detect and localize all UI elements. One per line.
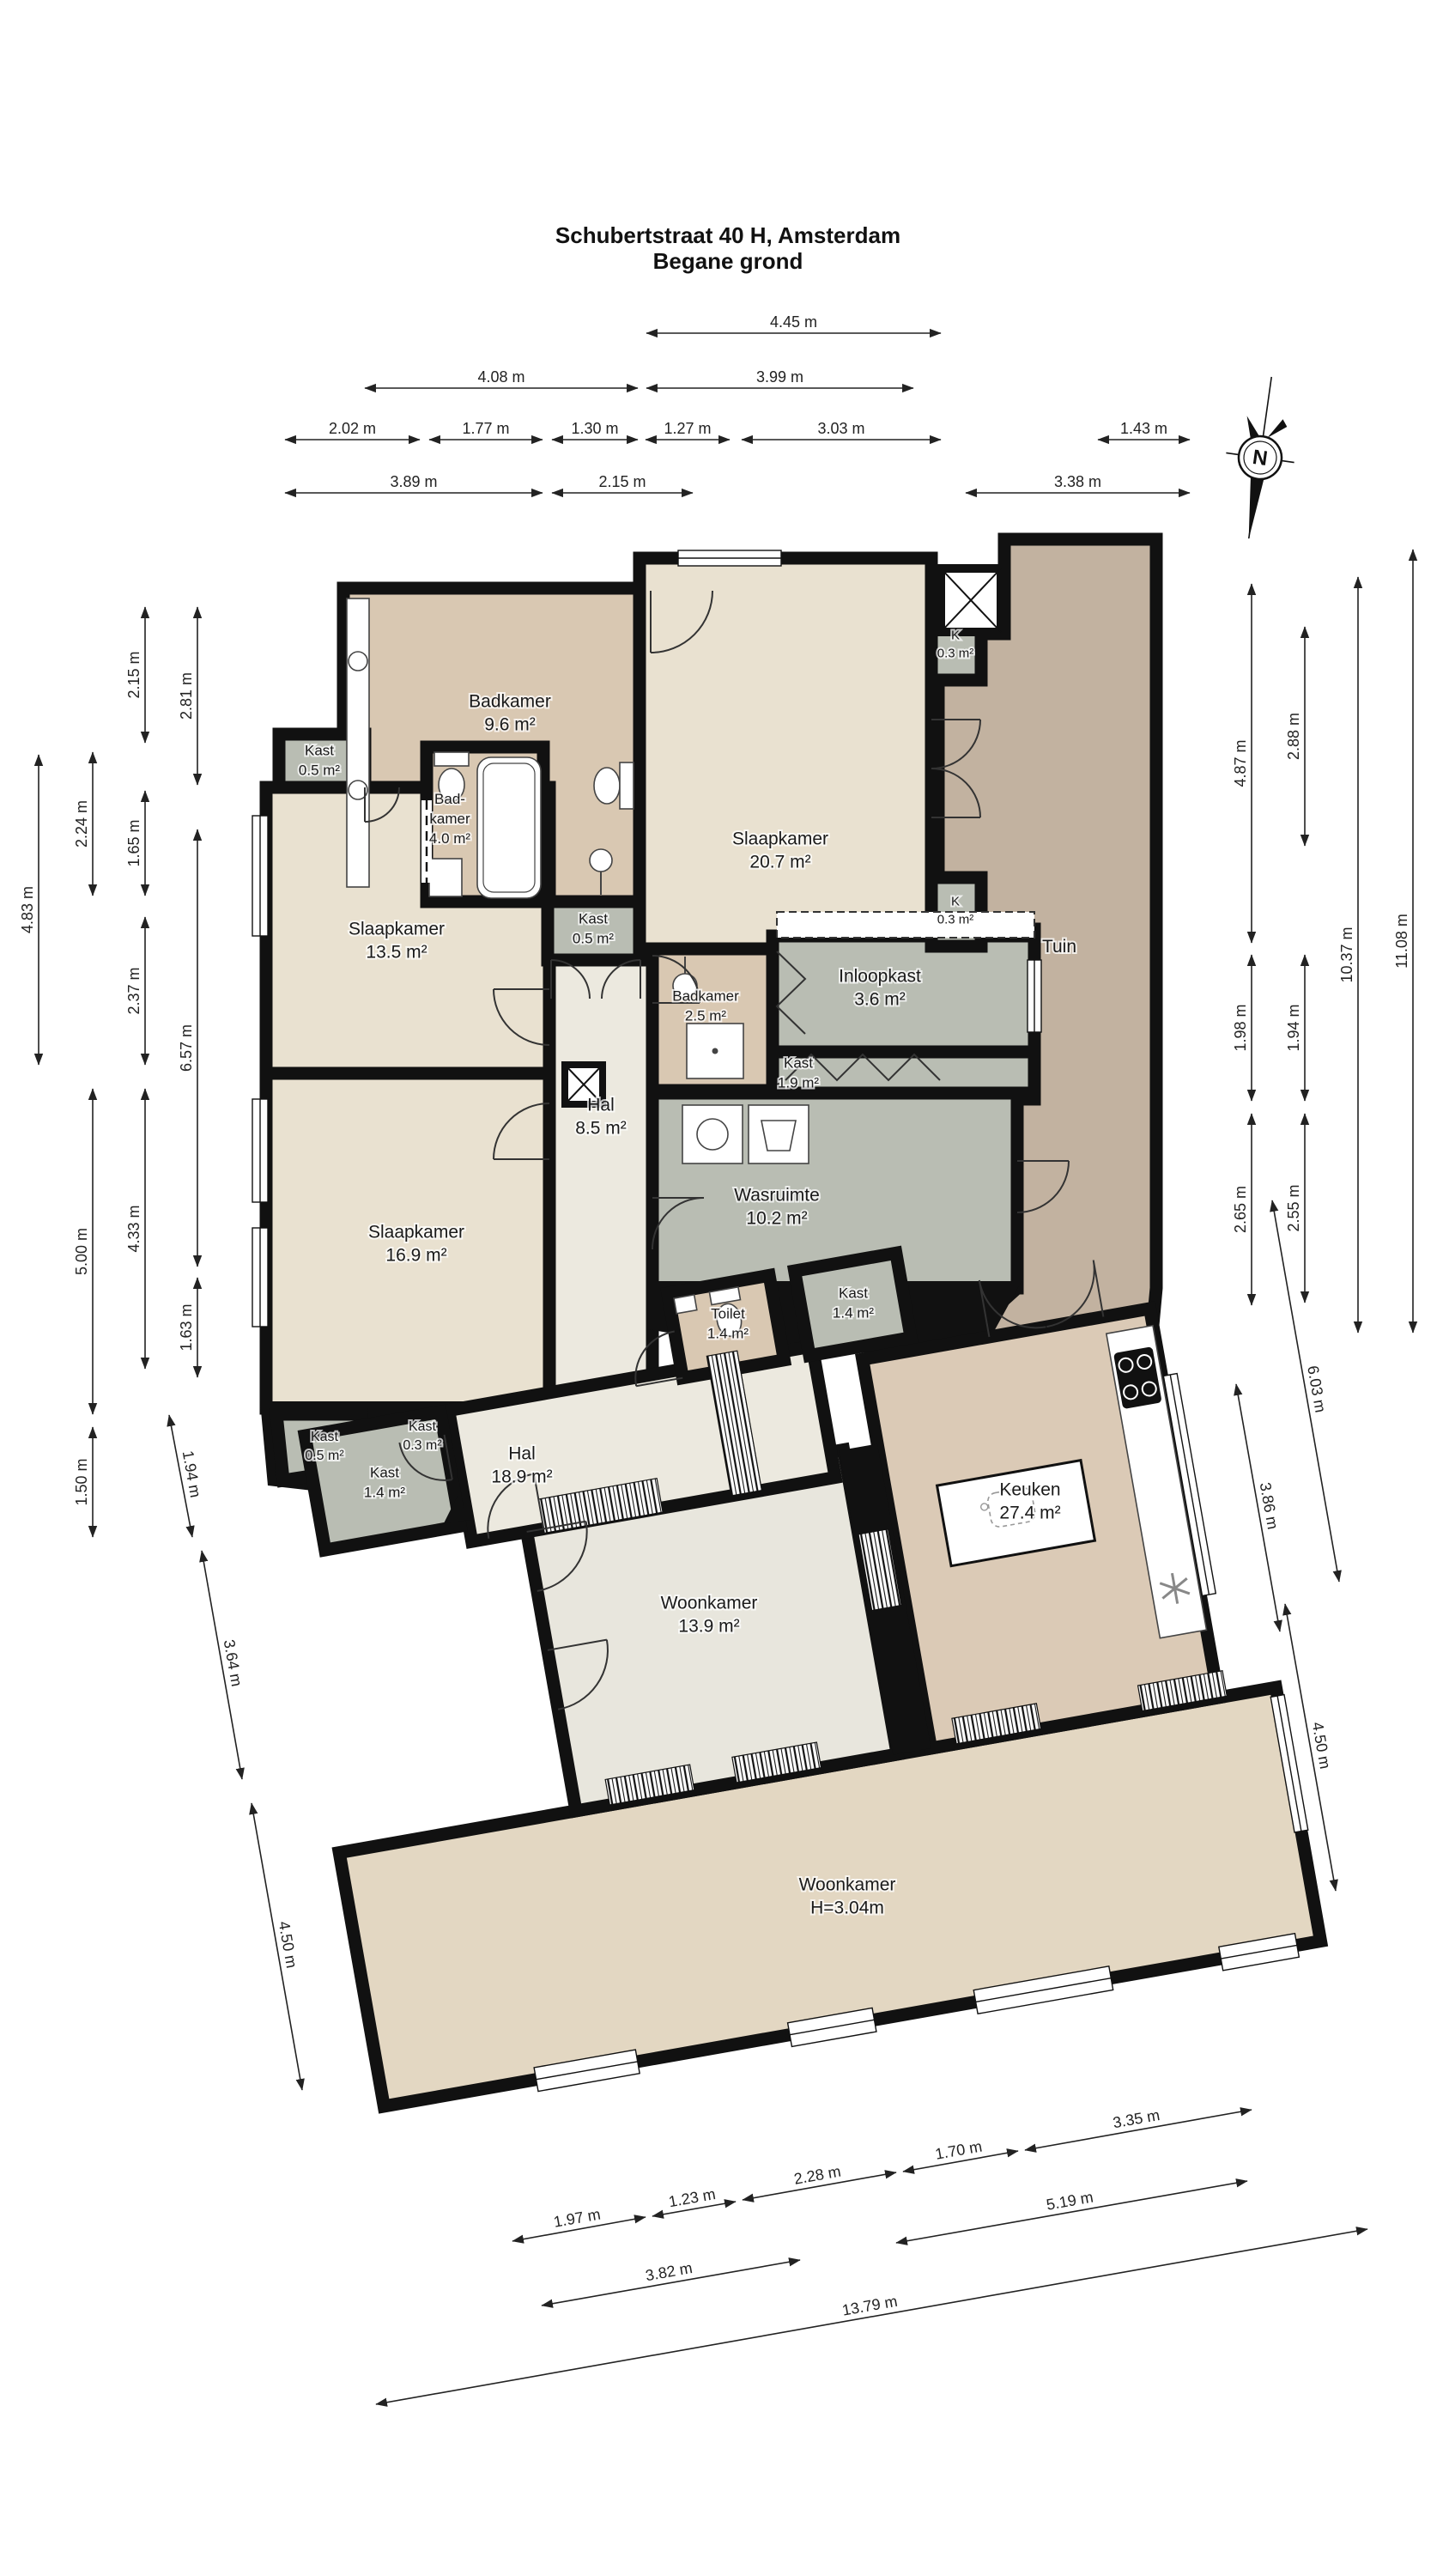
wardrobe-dashed: [777, 912, 1034, 938]
dimension-2-28-m: 2.28 m: [743, 2163, 896, 2200]
bathtub-icon: [477, 757, 541, 898]
plan-title: Schubertstraat 40 H, Amsterdam Begane gr…: [555, 222, 900, 274]
room-label-text: 4.0 m²: [429, 830, 471, 847]
dimension-1-70-m: 1.70 m: [903, 2138, 1018, 2172]
dimension-label: 2.65 m: [1232, 1186, 1249, 1233]
dimension-label: 3.99 m: [756, 368, 803, 386]
room-label-text: Slaapkamer: [349, 920, 445, 939]
dimension-2-24-m: 2.24 m: [73, 752, 93, 896]
dimension-label: 1.98 m: [1232, 1004, 1249, 1051]
dimension-2-15-m: 2.15 m: [552, 473, 693, 493]
dimension-4-08-m: 4.08 m: [365, 368, 638, 388]
room-label-text: 18.9 m²: [491, 1467, 552, 1487]
dimension-3-35-m: 3.35 m: [1025, 2106, 1252, 2150]
room-hal-8-5: [549, 960, 652, 1406]
room-label-text: Woonkamer: [799, 1875, 896, 1895]
dimension-label: 1.50 m: [73, 1458, 90, 1505]
dimension-1-50-m: 1.50 m: [73, 1427, 93, 1537]
room-label-text: Woonkamer: [661, 1594, 758, 1613]
room-label-tuin: Tuin: [1042, 937, 1076, 957]
dimension-label: 1.94 m: [1285, 1004, 1302, 1051]
dimension-3-38-m: 3.38 m: [966, 473, 1190, 493]
room-label-text: 8.5 m²: [575, 1119, 627, 1139]
dimension-label: 13.79 m: [840, 2293, 899, 2319]
dimension-6-57-m: 6.57 m: [178, 829, 197, 1267]
room-label-text: 13.5 m²: [366, 943, 427, 963]
room-label-text: 9.6 m²: [484, 715, 536, 735]
dimension-2-15-m: 2.15 m: [125, 607, 145, 743]
room-label-text: Slaapkamer: [732, 829, 828, 849]
pedestal-sink-icon: [590, 849, 612, 872]
room-label-text: 1.4 m²: [833, 1305, 875, 1321]
dimension-4-45-m: 4.45 m: [646, 313, 941, 333]
dimension-label: 1.94 m: [179, 1449, 204, 1499]
room-label-text: Kast: [370, 1465, 399, 1481]
dimension-1-65-m: 1.65 m: [125, 791, 145, 896]
dimension-10-37-m: 10.37 m: [1338, 577, 1358, 1333]
room-label-text: 0.5 m²: [299, 762, 341, 779]
dimension-3-03-m: 3.03 m: [742, 420, 941, 440]
room-label-text: Kast: [784, 1055, 813, 1072]
dimension-label: 2.55 m: [1285, 1184, 1302, 1231]
compass-south-spike: [1242, 476, 1264, 541]
room-label-text: 0.5 m²: [305, 1449, 344, 1463]
dimension-6-03-m: 6.03 m: [1272, 1200, 1339, 1582]
title-address: Schubertstraat 40 H, Amsterdam: [555, 222, 900, 248]
dimension-2-81-m: 2.81 m: [178, 607, 197, 785]
dimension-4-33-m: 4.33 m: [125, 1089, 145, 1369]
dimension-5-00-m: 5.00 m: [73, 1089, 93, 1414]
room-label-text: H=3.04m: [810, 1899, 884, 1918]
compass-wing-right: [1267, 417, 1288, 440]
dimension-label: 1.65 m: [125, 819, 142, 866]
room-label-text: Keuken: [999, 1480, 1060, 1500]
dimension-4-50-m: 4.50 m: [252, 1803, 302, 2090]
dimension-11-08-m: 11.08 m: [1393, 550, 1413, 1333]
room-label-text: Hal: [587, 1096, 615, 1115]
dimension-label: 4.33 m: [125, 1205, 142, 1252]
dimension-3-64-m: 3.64 m: [202, 1551, 246, 1779]
room-label-text: 1.4 m²: [364, 1485, 406, 1501]
room-label-text: Tuin: [1042, 937, 1076, 957]
room-label-text: 2.5 m²: [685, 1008, 727, 1024]
dimension-label: 3.38 m: [1054, 473, 1101, 490]
room-label-text: Inloopkast: [839, 967, 921, 987]
dimension-1-23-m: 1.23 m: [652, 2185, 736, 2216]
north-compass: N: [1215, 372, 1306, 544]
room-label-text: Kast: [305, 743, 334, 759]
sink-basin-icon: [749, 1105, 809, 1163]
dimension-2-88-m: 2.88 m: [1285, 627, 1305, 846]
dimension-2-37-m: 2.37 m: [125, 917, 145, 1065]
room-label-text: Slaapkamer: [368, 1223, 464, 1242]
room-label-text: 27.4 m²: [999, 1504, 1060, 1523]
washer-icon: [682, 1105, 743, 1163]
dimension-label: 2.15 m: [598, 473, 646, 490]
room-label-text: Kast: [579, 911, 608, 927]
dimension-label: 4.08 m: [477, 368, 524, 386]
dimension-3-82-m: 3.82 m: [542, 2259, 800, 2306]
room-label-text: Badkamer: [672, 988, 739, 1005]
room-label-text: Kast: [311, 1430, 339, 1444]
room-label-text: Toilet: [711, 1306, 745, 1322]
dimension-label: 2.37 m: [125, 967, 142, 1014]
dimension-label: 2.15 m: [125, 651, 142, 698]
dimension-label: 2.81 m: [178, 672, 195, 720]
room-label-text: Bad-: [434, 791, 465, 807]
room-label-text: 0.3 m²: [937, 913, 974, 927]
dimension-2-65-m: 2.65 m: [1232, 1114, 1252, 1305]
room-label-text: 1.4 m²: [707, 1326, 749, 1342]
room-label-text: Kast: [839, 1285, 868, 1302]
dimension-1-98-m: 1.98 m: [1232, 955, 1252, 1101]
room-label-text: K: [951, 629, 960, 643]
dimension-3-89-m: 3.89 m: [285, 473, 543, 493]
title-floor: Begane grond: [653, 248, 803, 274]
dimension-label: 1.43 m: [1120, 420, 1167, 437]
dimension-1-97-m: 1.97 m: [512, 2206, 646, 2241]
dimension-label: 4.83 m: [19, 886, 36, 933]
dimension-label: 10.37 m: [1338, 927, 1355, 982]
room-label-text: kamer: [429, 811, 470, 827]
dimension-label: 1.77 m: [462, 420, 509, 437]
room-label-text: 20.7 m²: [749, 853, 810, 872]
room-label-text: Kast: [409, 1419, 437, 1434]
dimension-1-30-m: 1.30 m: [552, 420, 638, 440]
dimension-label: 1.27 m: [664, 420, 711, 437]
dimension-label: 1.30 m: [571, 420, 618, 437]
room-label-text: 0.5 m²: [573, 931, 615, 947]
dimension-1-77-m: 1.77 m: [429, 420, 543, 440]
floorplan-canvas: Schubertstraat 40 H, Amsterdam Begane gr…: [0, 0, 1449, 2576]
dimension-2-02-m: 2.02 m: [285, 420, 420, 440]
dimension-4-83-m: 4.83 m: [19, 755, 39, 1065]
dimension-5-19-m: 5.19 m: [896, 2181, 1247, 2243]
dimension-1-94-m: 1.94 m: [1285, 955, 1305, 1101]
room-label-text: 1.9 m²: [778, 1075, 820, 1091]
dimension-3-99-m: 3.99 m: [646, 368, 913, 388]
room-label-text: 0.3 m²: [937, 647, 974, 661]
dimension-label: 4.87 m: [1232, 739, 1249, 787]
room-label-text: Wasruimte: [734, 1186, 820, 1206]
dimension-label: 2.24 m: [73, 800, 90, 848]
dimension-label: 4.45 m: [770, 313, 817, 331]
dimension-label: 2.88 m: [1285, 713, 1302, 760]
dimension-13-79-m: 13.79 m: [376, 2229, 1367, 2404]
dimension-label: 1.63 m: [178, 1303, 195, 1351]
room-label-text: 3.6 m²: [854, 990, 906, 1010]
toilet-icon-badkamer96: [594, 768, 620, 804]
room-label-text: 13.9 m²: [678, 1617, 739, 1637]
dimension-label: 11.08 m: [1393, 914, 1410, 969]
room-label-text: 10.2 m²: [746, 1209, 807, 1229]
dimension-3-86-m: 3.86 m: [1236, 1384, 1282, 1631]
dimension-label: 2.02 m: [329, 420, 376, 437]
dimension-4-87-m: 4.87 m: [1232, 584, 1252, 943]
dimension-label: 3.89 m: [390, 473, 437, 490]
room-label-text: Hal: [508, 1444, 536, 1464]
room-label-badkamer-4-0: Bad-kamer4.0 m²: [429, 791, 471, 847]
room-label-text: K: [951, 895, 960, 909]
dimension-label: 3.03 m: [817, 420, 864, 437]
dimension-label: 6.57 m: [178, 1024, 195, 1072]
room-label-text: 0.3 m²: [403, 1438, 442, 1453]
dimension-1-43-m: 1.43 m: [1098, 420, 1190, 440]
dimension-1-63-m: 1.63 m: [178, 1278, 197, 1377]
dimension-label: 5.00 m: [73, 1228, 90, 1275]
floorplan-page: Schubertstraat 40 H, Amsterdam Begane gr…: [0, 0, 1449, 2576]
dimension-1-94-m: 1.94 m: [169, 1415, 204, 1537]
dimension-2-55-m: 2.55 m: [1285, 1114, 1305, 1303]
dimension-1-27-m: 1.27 m: [646, 420, 730, 440]
room-label-text: 16.9 m²: [385, 1246, 446, 1266]
room-label-text: Badkamer: [469, 692, 551, 712]
